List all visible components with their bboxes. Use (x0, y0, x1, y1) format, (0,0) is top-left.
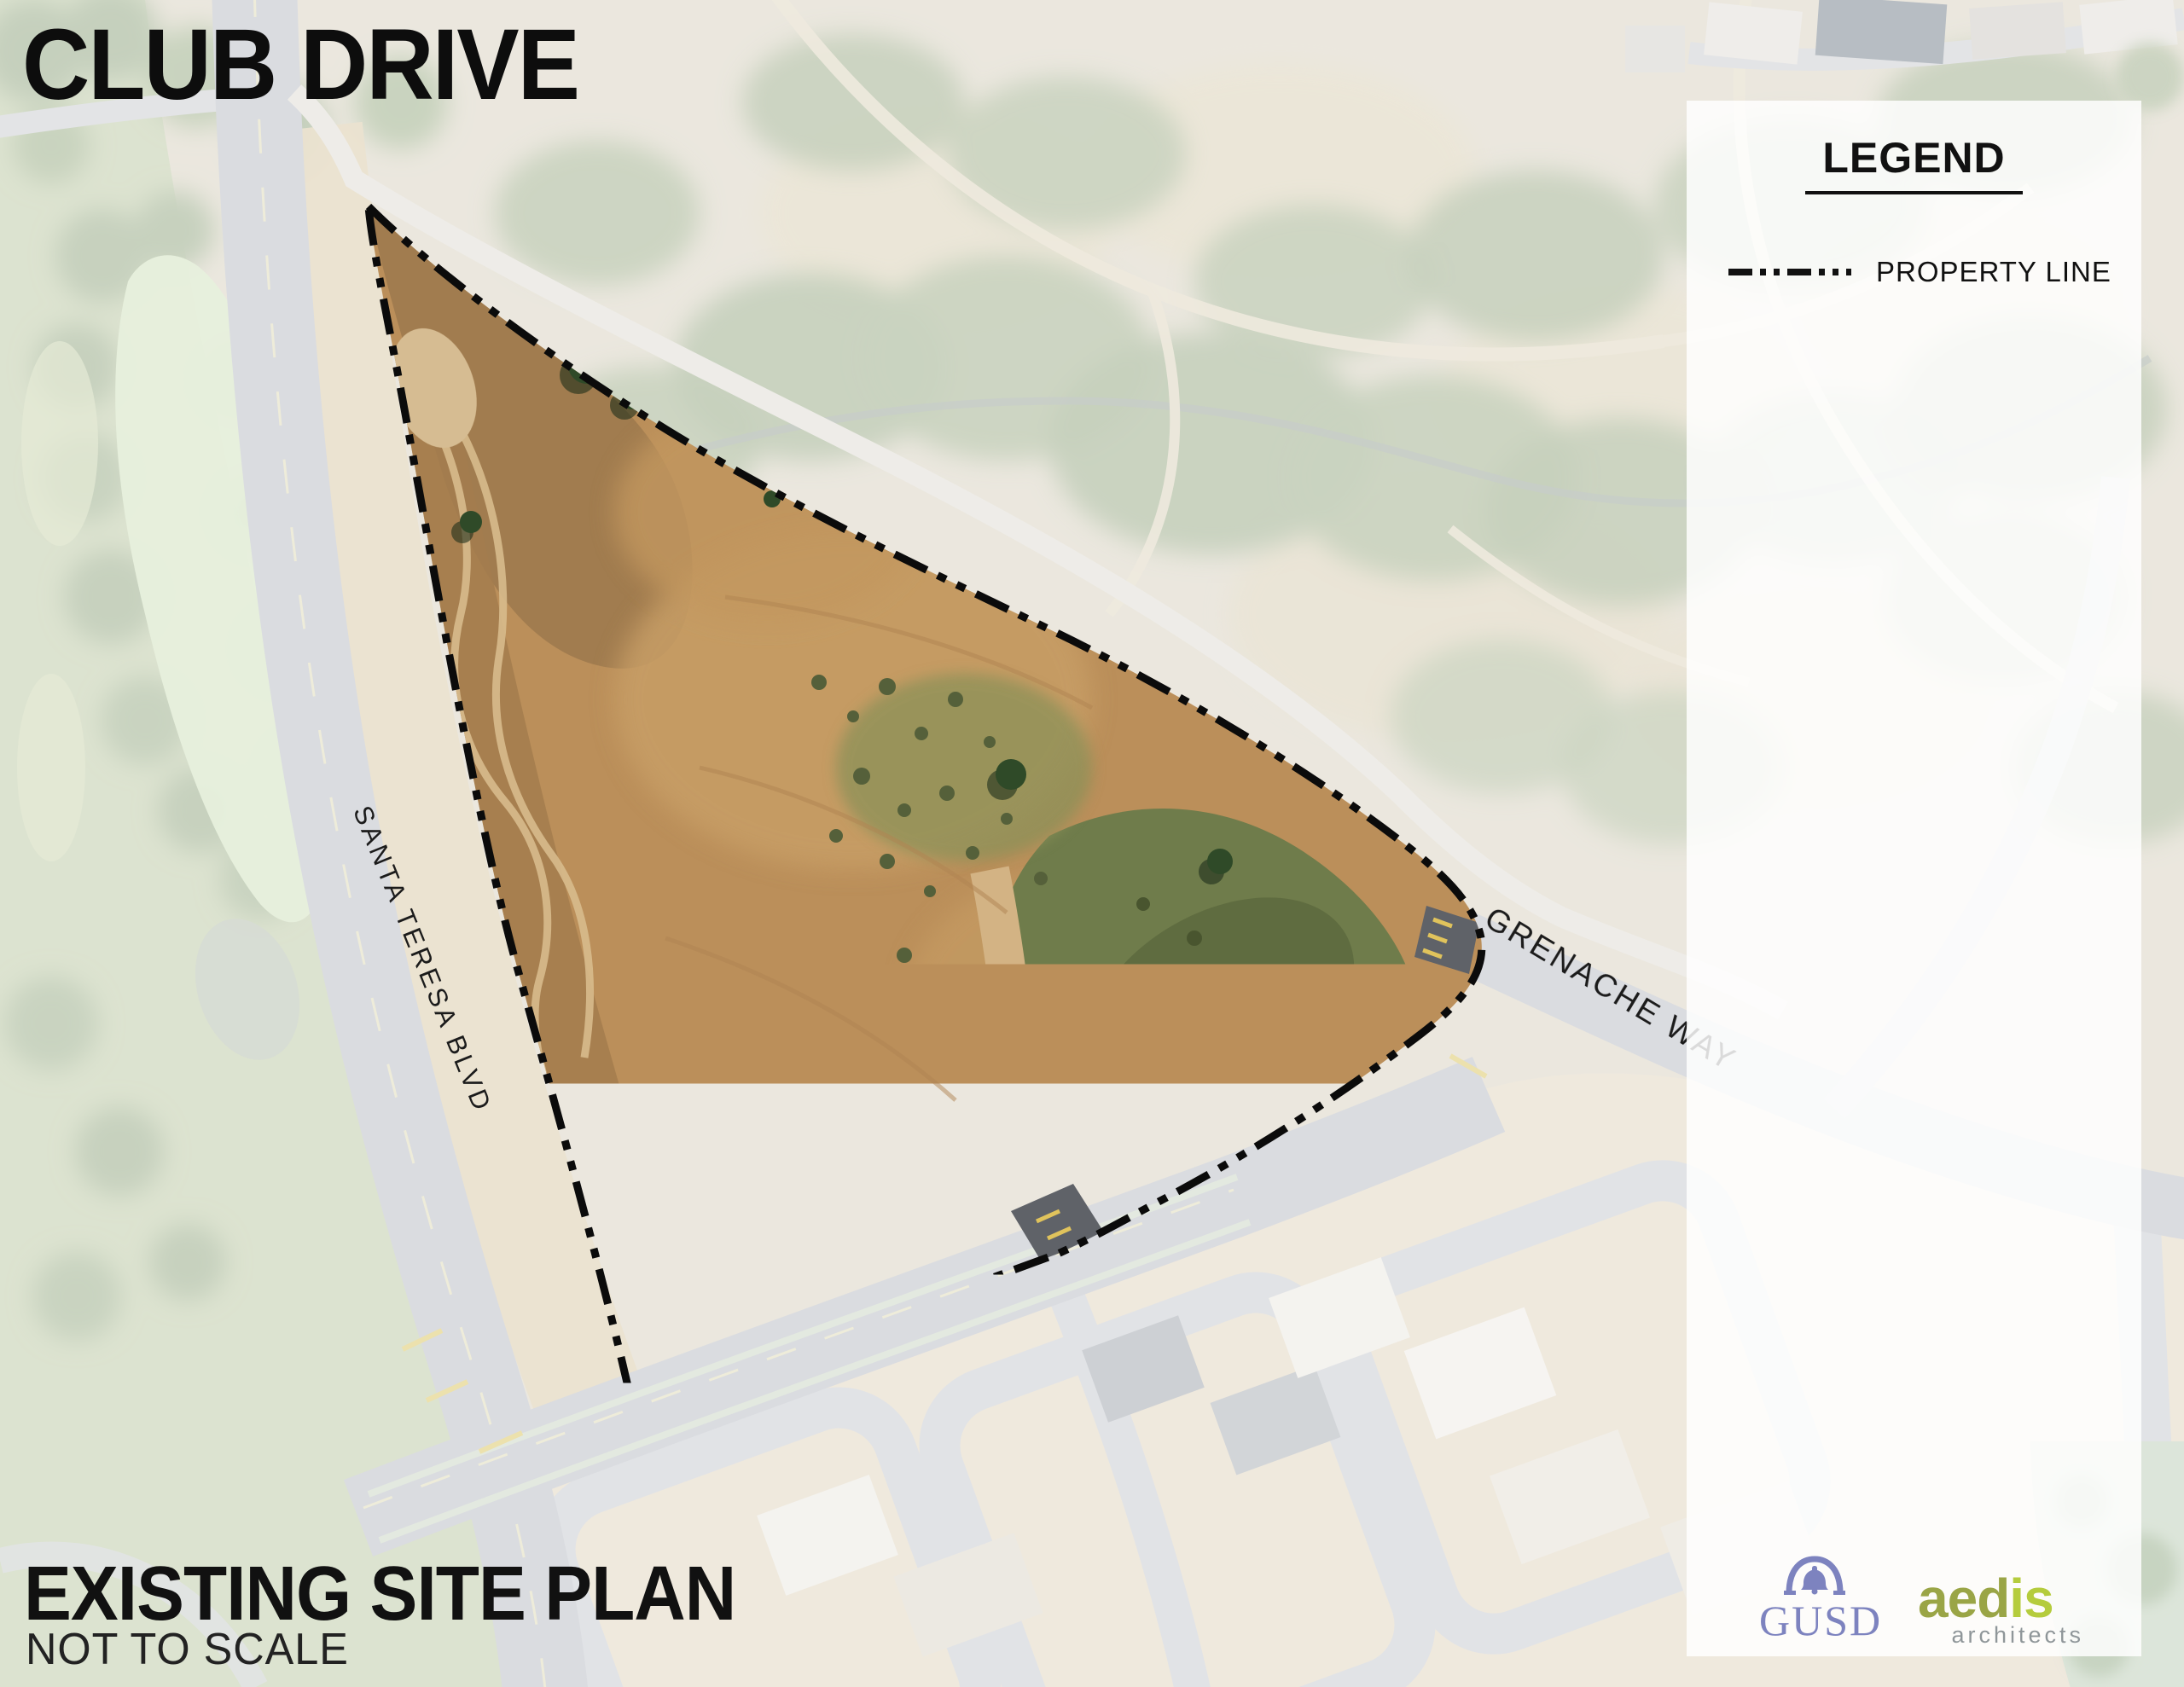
legend-item-label: PROPERTY LINE (1876, 256, 2111, 288)
property-line-swatch-icon (1726, 266, 1854, 278)
gusd-logo-text: GUSD (1759, 1599, 1870, 1642)
aedis-logo: aedis architects (1918, 1571, 2084, 1649)
legend-panel: LEGEND PROPERTY LINE (1687, 101, 2141, 1656)
legend-title: LEGEND (1805, 133, 2022, 194)
north-label: N (1597, 1528, 1628, 1578)
gusd-logo: GUSD (1759, 1552, 1870, 1642)
aedis-logo-text: aedis (1918, 1571, 2084, 1626)
legend-item-property-line: PROPERTY LINE (1726, 256, 2141, 288)
gusd-bell-icon (1782, 1552, 1847, 1595)
site-plan-sheet: CLUB DRIVE SANTA TERESA BLVD CLUB DRIVE … (0, 0, 2184, 1687)
drawing-scale-note: NOT TO SCALE (26, 1624, 349, 1675)
page-title: CLUB DRIVE (22, 7, 578, 123)
